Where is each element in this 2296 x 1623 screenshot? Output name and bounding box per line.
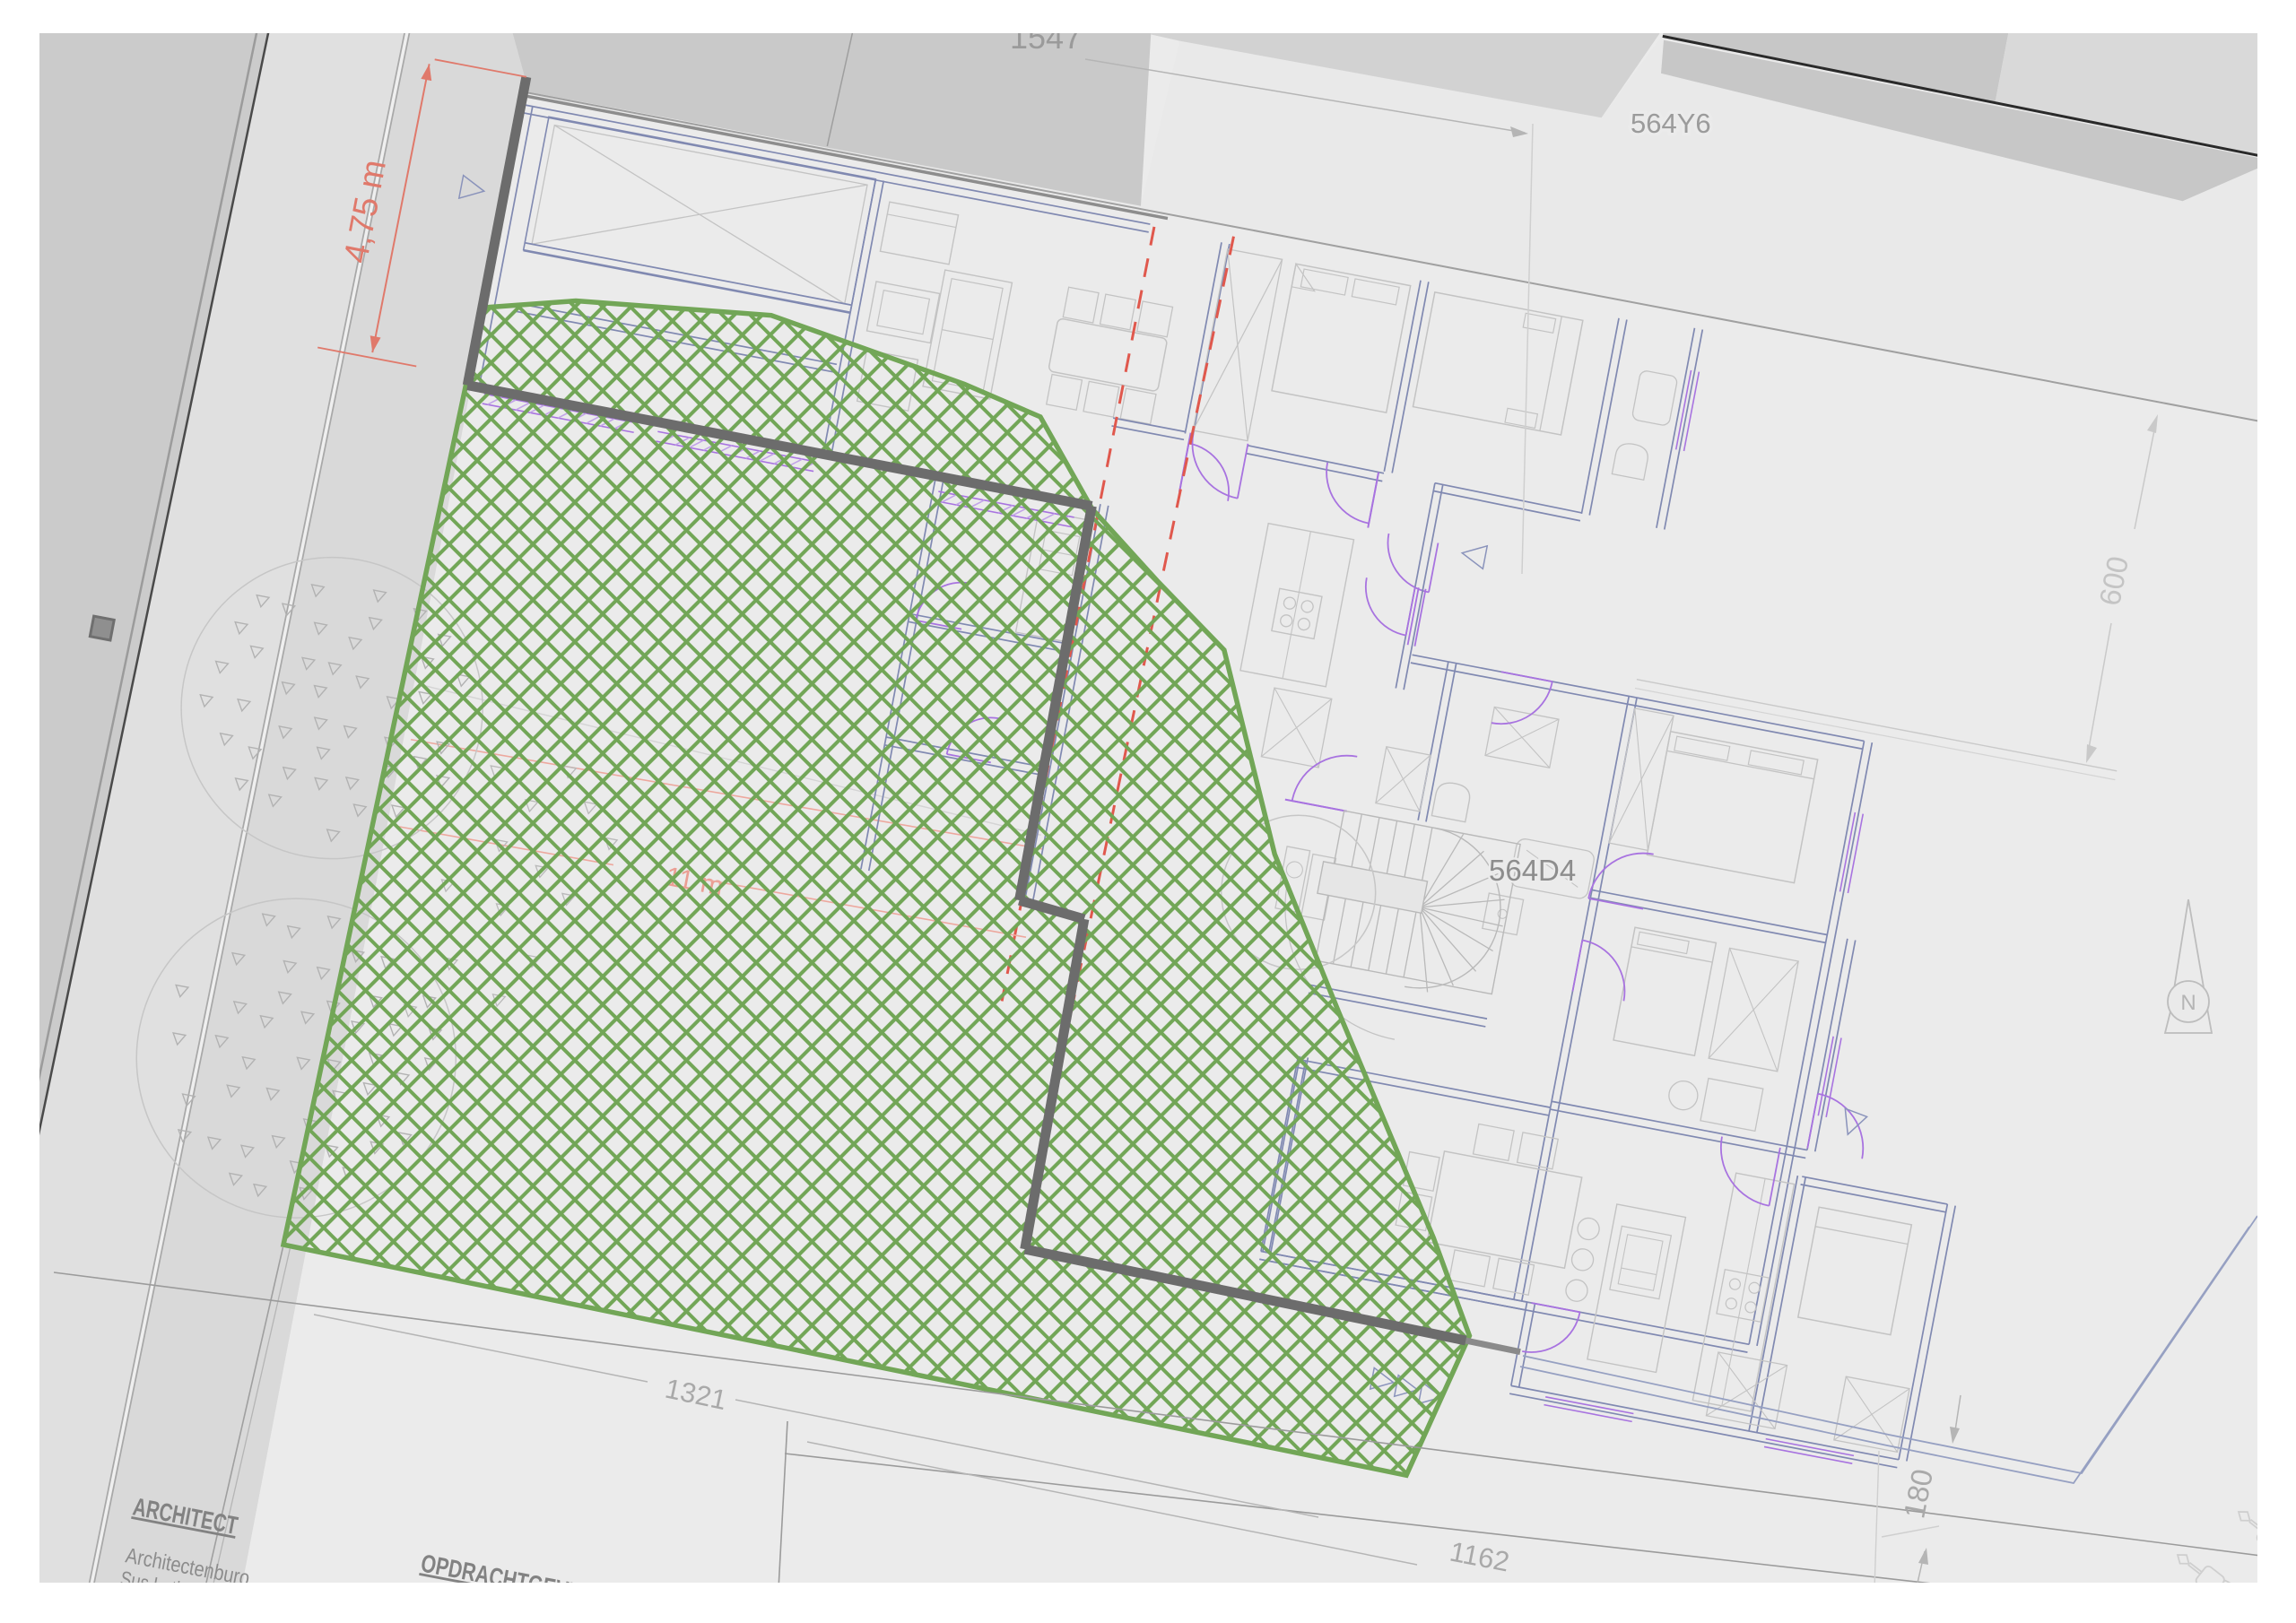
svg-text:564D4: 564D4	[1489, 854, 1576, 887]
svg-text:564Y6: 564Y6	[1631, 108, 1711, 139]
svg-text:N: N	[2180, 991, 2196, 1015]
